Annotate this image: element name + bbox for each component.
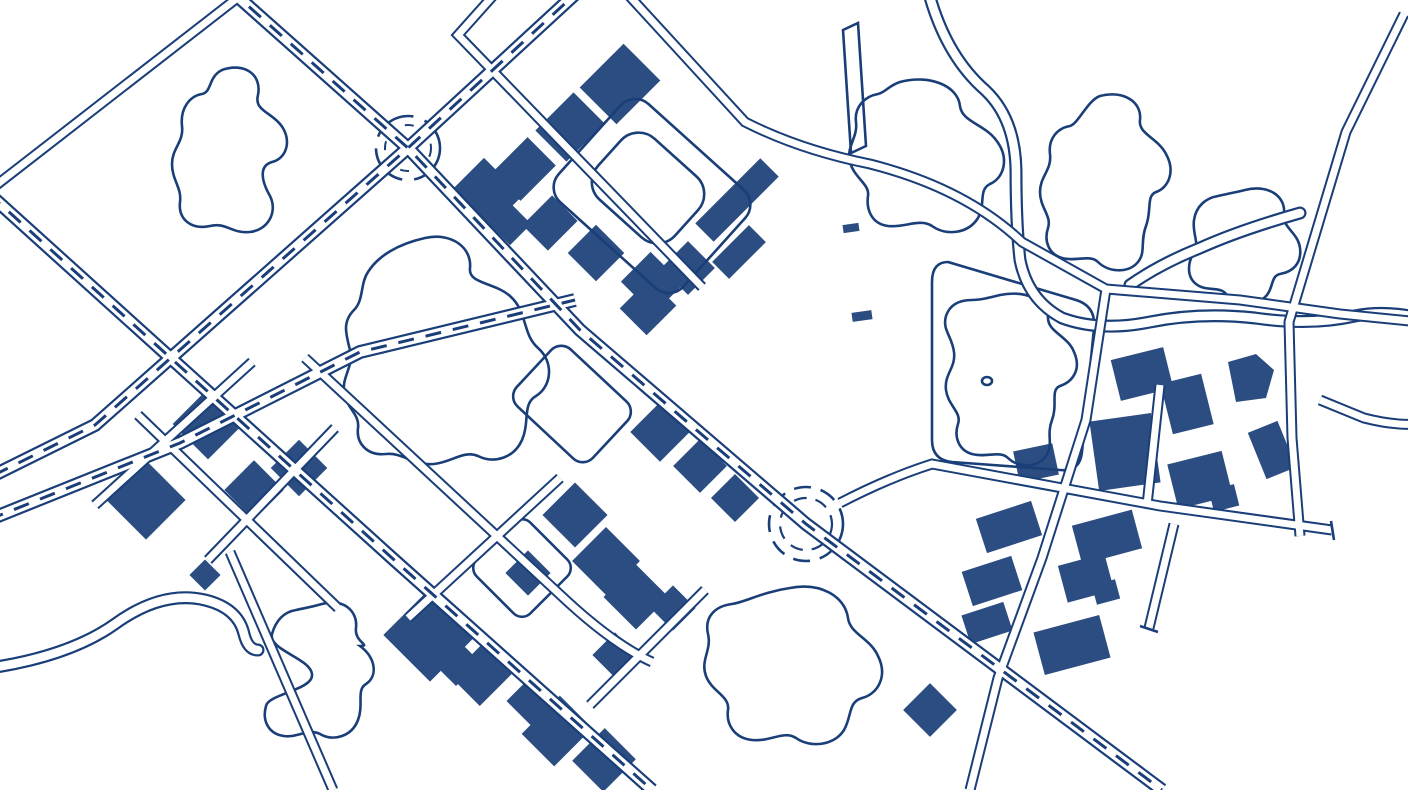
pond-outline xyxy=(1040,94,1171,270)
pond-outline xyxy=(704,587,882,745)
road-surface xyxy=(228,0,1162,790)
building-footprint xyxy=(851,310,872,322)
pond-outline xyxy=(172,68,287,233)
ponds xyxy=(172,68,1300,745)
pond-island xyxy=(982,377,992,385)
dead-end-cap xyxy=(1331,521,1334,540)
building-footprint xyxy=(843,223,860,233)
map-illustration xyxy=(0,0,1408,790)
map-canvas xyxy=(0,0,1408,790)
road-surface xyxy=(1289,14,1404,536)
building-footprint xyxy=(976,501,1042,553)
building-footprint xyxy=(522,195,577,250)
road-surface xyxy=(408,478,560,618)
building-footprint xyxy=(903,683,957,737)
avenue xyxy=(0,300,575,520)
building-footprint xyxy=(1072,510,1142,565)
street xyxy=(0,0,245,190)
building-footprint xyxy=(189,559,220,590)
road-surface xyxy=(0,0,245,190)
road-surface xyxy=(1149,524,1174,628)
building-footprint xyxy=(1228,354,1274,402)
building-footprint xyxy=(695,158,778,241)
building-footprint xyxy=(1160,374,1213,435)
building-footprint xyxy=(1033,615,1110,675)
building-footprint xyxy=(962,556,1023,606)
